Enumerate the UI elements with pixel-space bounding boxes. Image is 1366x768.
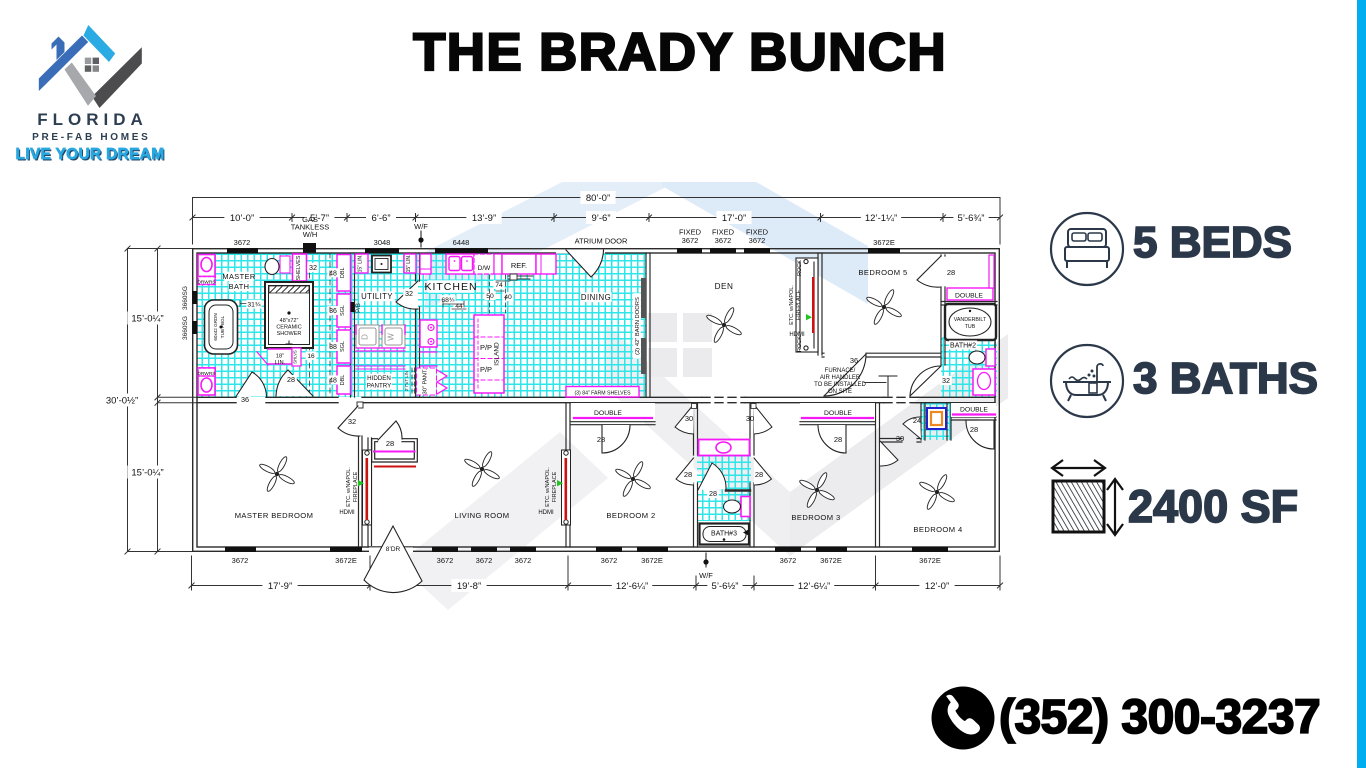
svg-text:ETC. w/NAPOL.: ETC. w/NAPOL. <box>789 285 795 325</box>
svg-text:17’-0”: 17’-0” <box>722 213 746 224</box>
svg-text:19’-8”: 19’-8” <box>457 581 481 592</box>
svg-text:6’-6”: 6’-6” <box>371 213 390 224</box>
svg-text:P/P: P/P <box>480 365 492 374</box>
svg-text:HDMI: HDMI <box>538 510 554 516</box>
svg-text:5’-6½”: 5’-6½” <box>712 581 739 592</box>
svg-text:3672E: 3672E <box>873 238 895 247</box>
svg-text:SHOWER: SHOWER <box>277 331 302 337</box>
svg-text:32: 32 <box>309 263 317 272</box>
svg-text:28: 28 <box>386 439 394 448</box>
svg-text:15’-0¼”: 15’-0¼” <box>131 314 163 325</box>
svg-text:P/P: P/P <box>480 343 492 352</box>
svg-text:(2) 42” BARN DOORS: (2) 42” BARN DOORS <box>635 297 641 355</box>
svg-text:DOUBLE: DOUBLE <box>594 410 622 417</box>
svg-text:18”: 18” <box>276 354 284 360</box>
svg-text:W/F: W/F <box>414 222 428 231</box>
svg-text:3672E: 3672E <box>820 556 842 565</box>
svg-text:DINING: DINING <box>581 293 611 302</box>
svg-text:30” PANT.: 30” PANT. <box>423 368 429 394</box>
svg-text:17’-9”: 17’-9” <box>268 581 292 592</box>
svg-text:MASTER: MASTER <box>222 272 255 281</box>
svg-text:28: 28 <box>684 470 692 479</box>
svg-text:28: 28 <box>287 375 295 384</box>
svg-text:D/W: D/W <box>478 265 492 272</box>
svg-text:3672: 3672 <box>234 238 251 247</box>
svg-text:28: 28 <box>597 435 605 444</box>
svg-text:60x42 GRDN: 60x42 GRDN <box>213 313 218 340</box>
svg-text:12’-6¼”: 12’-6¼” <box>798 581 830 592</box>
svg-text:6448: 6448 <box>453 238 470 247</box>
svg-text:28: 28 <box>834 435 842 444</box>
svg-text:3048: 3048 <box>374 238 391 247</box>
svg-text:12’-0”: 12’-0” <box>925 581 949 592</box>
svg-text:32: 32 <box>405 289 413 298</box>
svg-text:3672: 3672 <box>476 556 493 565</box>
svg-text:BEDROOM 2: BEDROOM 2 <box>606 511 655 520</box>
svg-text:28: 28 <box>947 268 955 277</box>
svg-text:15” LIN.: 15” LIN. <box>406 255 412 273</box>
svg-text:8’DR: 8’DR <box>386 546 401 553</box>
svg-text:UTILITY: UTILITY <box>361 292 393 301</box>
svg-text:SHELVES: SHELVES <box>296 255 302 280</box>
svg-text:DBL: DBL <box>340 267 346 278</box>
svg-text:ATRIUM DOOR: ATRIUM DOOR <box>575 237 628 246</box>
svg-text:48”x72”: 48”x72” <box>280 318 299 324</box>
svg-text:DOUBLE: DOUBLE <box>955 293 983 300</box>
svg-text:DEN: DEN <box>715 282 734 291</box>
svg-text:3672: 3672 <box>715 236 732 245</box>
svg-text:10’-0”: 10’-0” <box>230 213 254 224</box>
svg-text:3672: 3672 <box>749 236 766 245</box>
svg-text:DRWRS: DRWRS <box>197 280 215 286</box>
svg-text:TUB: TUB <box>965 324 976 330</box>
svg-text:SGL: SGL <box>340 341 346 352</box>
svg-text:12’-1¼”: 12’-1¼” <box>865 213 897 224</box>
svg-text:3672: 3672 <box>515 556 532 565</box>
svg-text:3672E: 3672E <box>919 556 941 565</box>
svg-text:2’7”x7’ LIN: 2’7”x7’ LIN <box>404 371 409 391</box>
svg-text:BEDROOM 3: BEDROOM 3 <box>791 513 840 522</box>
svg-text:ON SITE: ON SITE <box>828 389 852 395</box>
svg-text:FURNACE/: FURNACE/ <box>825 368 856 374</box>
svg-text:CERAMIC: CERAMIC <box>276 325 301 331</box>
svg-text:LIN.: LIN. <box>275 360 286 366</box>
svg-text:3672: 3672 <box>780 556 797 565</box>
svg-text:HIDDEN: HIDDEN <box>367 375 391 382</box>
svg-text:SHLVS: SHLVS <box>293 350 298 364</box>
svg-text:ROCK: ROCK <box>797 336 803 352</box>
svg-text:3672: 3672 <box>232 556 249 565</box>
svg-text:DRWRS: DRWRS <box>197 371 215 377</box>
svg-text:W/H: W/H <box>303 230 318 239</box>
svg-text:HDMI: HDMI <box>339 510 355 516</box>
svg-text:KITCHEN: KITCHEN <box>424 281 477 293</box>
svg-text:28: 28 <box>709 489 717 498</box>
svg-text:VANDERBILT: VANDERBILT <box>954 317 987 323</box>
svg-text:3672: 3672 <box>601 556 618 565</box>
svg-text:16: 16 <box>307 353 315 360</box>
svg-text:3672: 3672 <box>682 236 699 245</box>
svg-text:50: 50 <box>486 293 494 300</box>
svg-text:5’-6¾”: 5’-6¾” <box>958 213 985 224</box>
svg-text:15” LIN.: 15” LIN. <box>358 255 364 273</box>
svg-text:74: 74 <box>495 282 503 289</box>
svg-text:3660SG: 3660SG <box>182 316 189 340</box>
svg-text:3672E: 3672E <box>335 556 357 565</box>
svg-text:PANTRY: PANTRY <box>367 383 392 390</box>
svg-text:REF.: REF. <box>511 261 527 270</box>
svg-text:FIREPLACE: FIREPLACE <box>552 471 558 502</box>
svg-text:13’-9”: 13’-9” <box>472 213 496 224</box>
svg-text:30: 30 <box>896 434 904 443</box>
svg-text:ROCK: ROCK <box>797 260 803 276</box>
svg-text:DBL: DBL <box>340 375 346 386</box>
svg-text:28: 28 <box>970 425 978 434</box>
svg-text:24: 24 <box>913 416 921 425</box>
svg-text:30: 30 <box>685 414 693 423</box>
svg-text:FIREPLACE: FIREPLACE <box>796 289 802 320</box>
svg-text:31¾: 31¾ <box>247 302 261 309</box>
svg-text:LIVING ROOM: LIVING ROOM <box>454 511 509 520</box>
svg-text:BEDROOM 4: BEDROOM 4 <box>913 525 962 534</box>
svg-text:D: D <box>361 334 370 340</box>
svg-text:36: 36 <box>850 356 858 365</box>
svg-text:AIR HANDLER: AIR HANDLER <box>820 375 861 381</box>
svg-text:15’-0¼”: 15’-0¼” <box>131 468 163 479</box>
svg-text:SGL: SGL <box>340 305 346 316</box>
svg-text:3672E: 3672E <box>641 556 663 565</box>
svg-text:30’-0½”: 30’-0½” <box>106 396 138 407</box>
svg-text:68¾: 68¾ <box>441 297 455 304</box>
svg-text:W: W <box>387 333 396 341</box>
svg-text:P/B: P/B <box>356 303 362 313</box>
svg-text:ISLAND: ISLAND <box>494 342 501 366</box>
svg-text:BATH: BATH <box>229 282 250 291</box>
svg-text:28: 28 <box>755 470 763 479</box>
svg-text:TO BE INSTALLED: TO BE INSTALLED <box>814 382 866 388</box>
svg-text:MASTER BEDROOM: MASTER BEDROOM <box>235 511 314 520</box>
svg-text:3672: 3672 <box>437 556 454 565</box>
svg-text:TUB FBGL: TUB FBGL <box>220 315 225 338</box>
svg-text:HDMI: HDMI <box>789 332 805 338</box>
svg-text:80’-0”: 80’-0” <box>586 193 610 204</box>
svg-text:32: 32 <box>942 376 950 385</box>
svg-text:36: 36 <box>241 395 249 404</box>
svg-text:32: 32 <box>348 417 356 426</box>
svg-text:DOUBLE: DOUBLE <box>824 410 852 417</box>
svg-text:ETC. w/NAPOL.: ETC. w/NAPOL. <box>545 467 551 507</box>
svg-text:12’-6¼”: 12’-6¼” <box>616 581 648 592</box>
svg-text:FIREPLACE: FIREPLACE <box>353 471 359 502</box>
svg-text:3660SG: 3660SG <box>182 286 189 310</box>
svg-text:W/F: W/F <box>699 571 713 580</box>
svg-text:BATH#3: BATH#3 <box>711 531 737 538</box>
svg-text:BEDROOM 5: BEDROOM 5 <box>858 268 907 277</box>
svg-text:DOUBLE: DOUBLE <box>960 407 988 414</box>
svg-text:9’-6”: 9’-6” <box>591 213 610 224</box>
svg-text:(3) 84” FARM SHELVES: (3) 84” FARM SHELVES <box>574 390 631 396</box>
svg-text:ETC. w/NAPOL.: ETC. w/NAPOL. <box>346 467 352 507</box>
svg-text:30: 30 <box>746 414 754 423</box>
svg-text:BATH#2: BATH#2 <box>950 343 976 350</box>
